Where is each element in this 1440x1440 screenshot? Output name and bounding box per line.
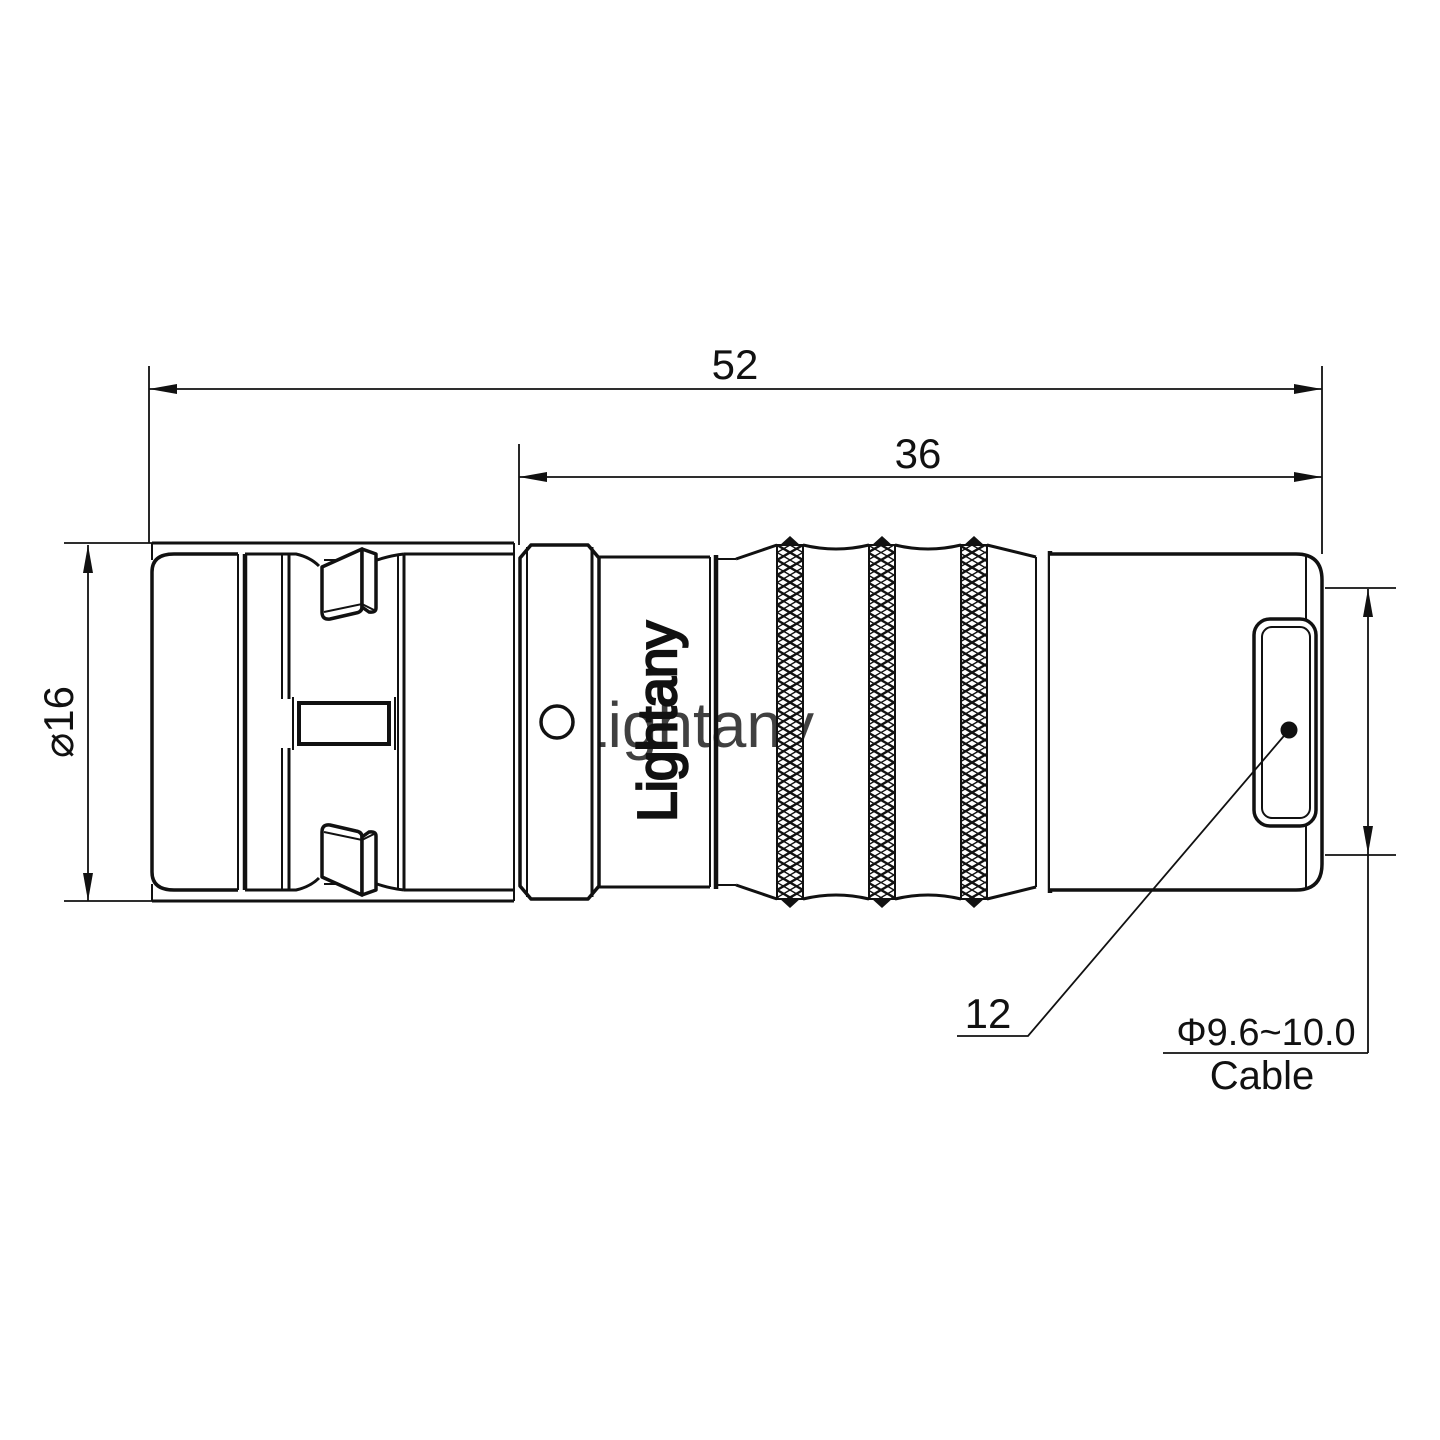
knurl-ring-2: [869, 536, 895, 908]
dim-52-label: 52: [712, 341, 759, 388]
latch-bottom: [322, 825, 376, 895]
dim-36-label: 36: [895, 430, 942, 477]
latch-top: [322, 549, 376, 619]
drawing-canvas: Lightany: [0, 0, 1440, 1440]
knurl-ring-1: [777, 536, 803, 908]
dimension-overall-length: 52: [149, 341, 1322, 554]
coupling-collar: [520, 545, 599, 899]
technical-drawing: Lightany: [0, 0, 1440, 1440]
leader-dot: [1281, 722, 1298, 739]
cable-word-label: Cable: [1210, 1054, 1315, 1098]
part-12-label: 12: [965, 990, 1012, 1037]
knurl-ring-3: [961, 536, 987, 908]
connector-front-shell: [152, 543, 514, 901]
collar-hole: [541, 706, 573, 738]
cable-range-label: Φ9.6~10.0: [1176, 1012, 1355, 1054]
brand-text: Lightany: [626, 621, 688, 822]
dim-d16-label: ⌀16: [35, 686, 82, 758]
dimension-body-length: 36: [519, 430, 1322, 545]
rear-body: [1050, 554, 1322, 890]
dimension-front-diameter: ⌀16: [35, 543, 152, 901]
nose-cap: [152, 554, 238, 890]
keyway-bar: [293, 697, 395, 750]
